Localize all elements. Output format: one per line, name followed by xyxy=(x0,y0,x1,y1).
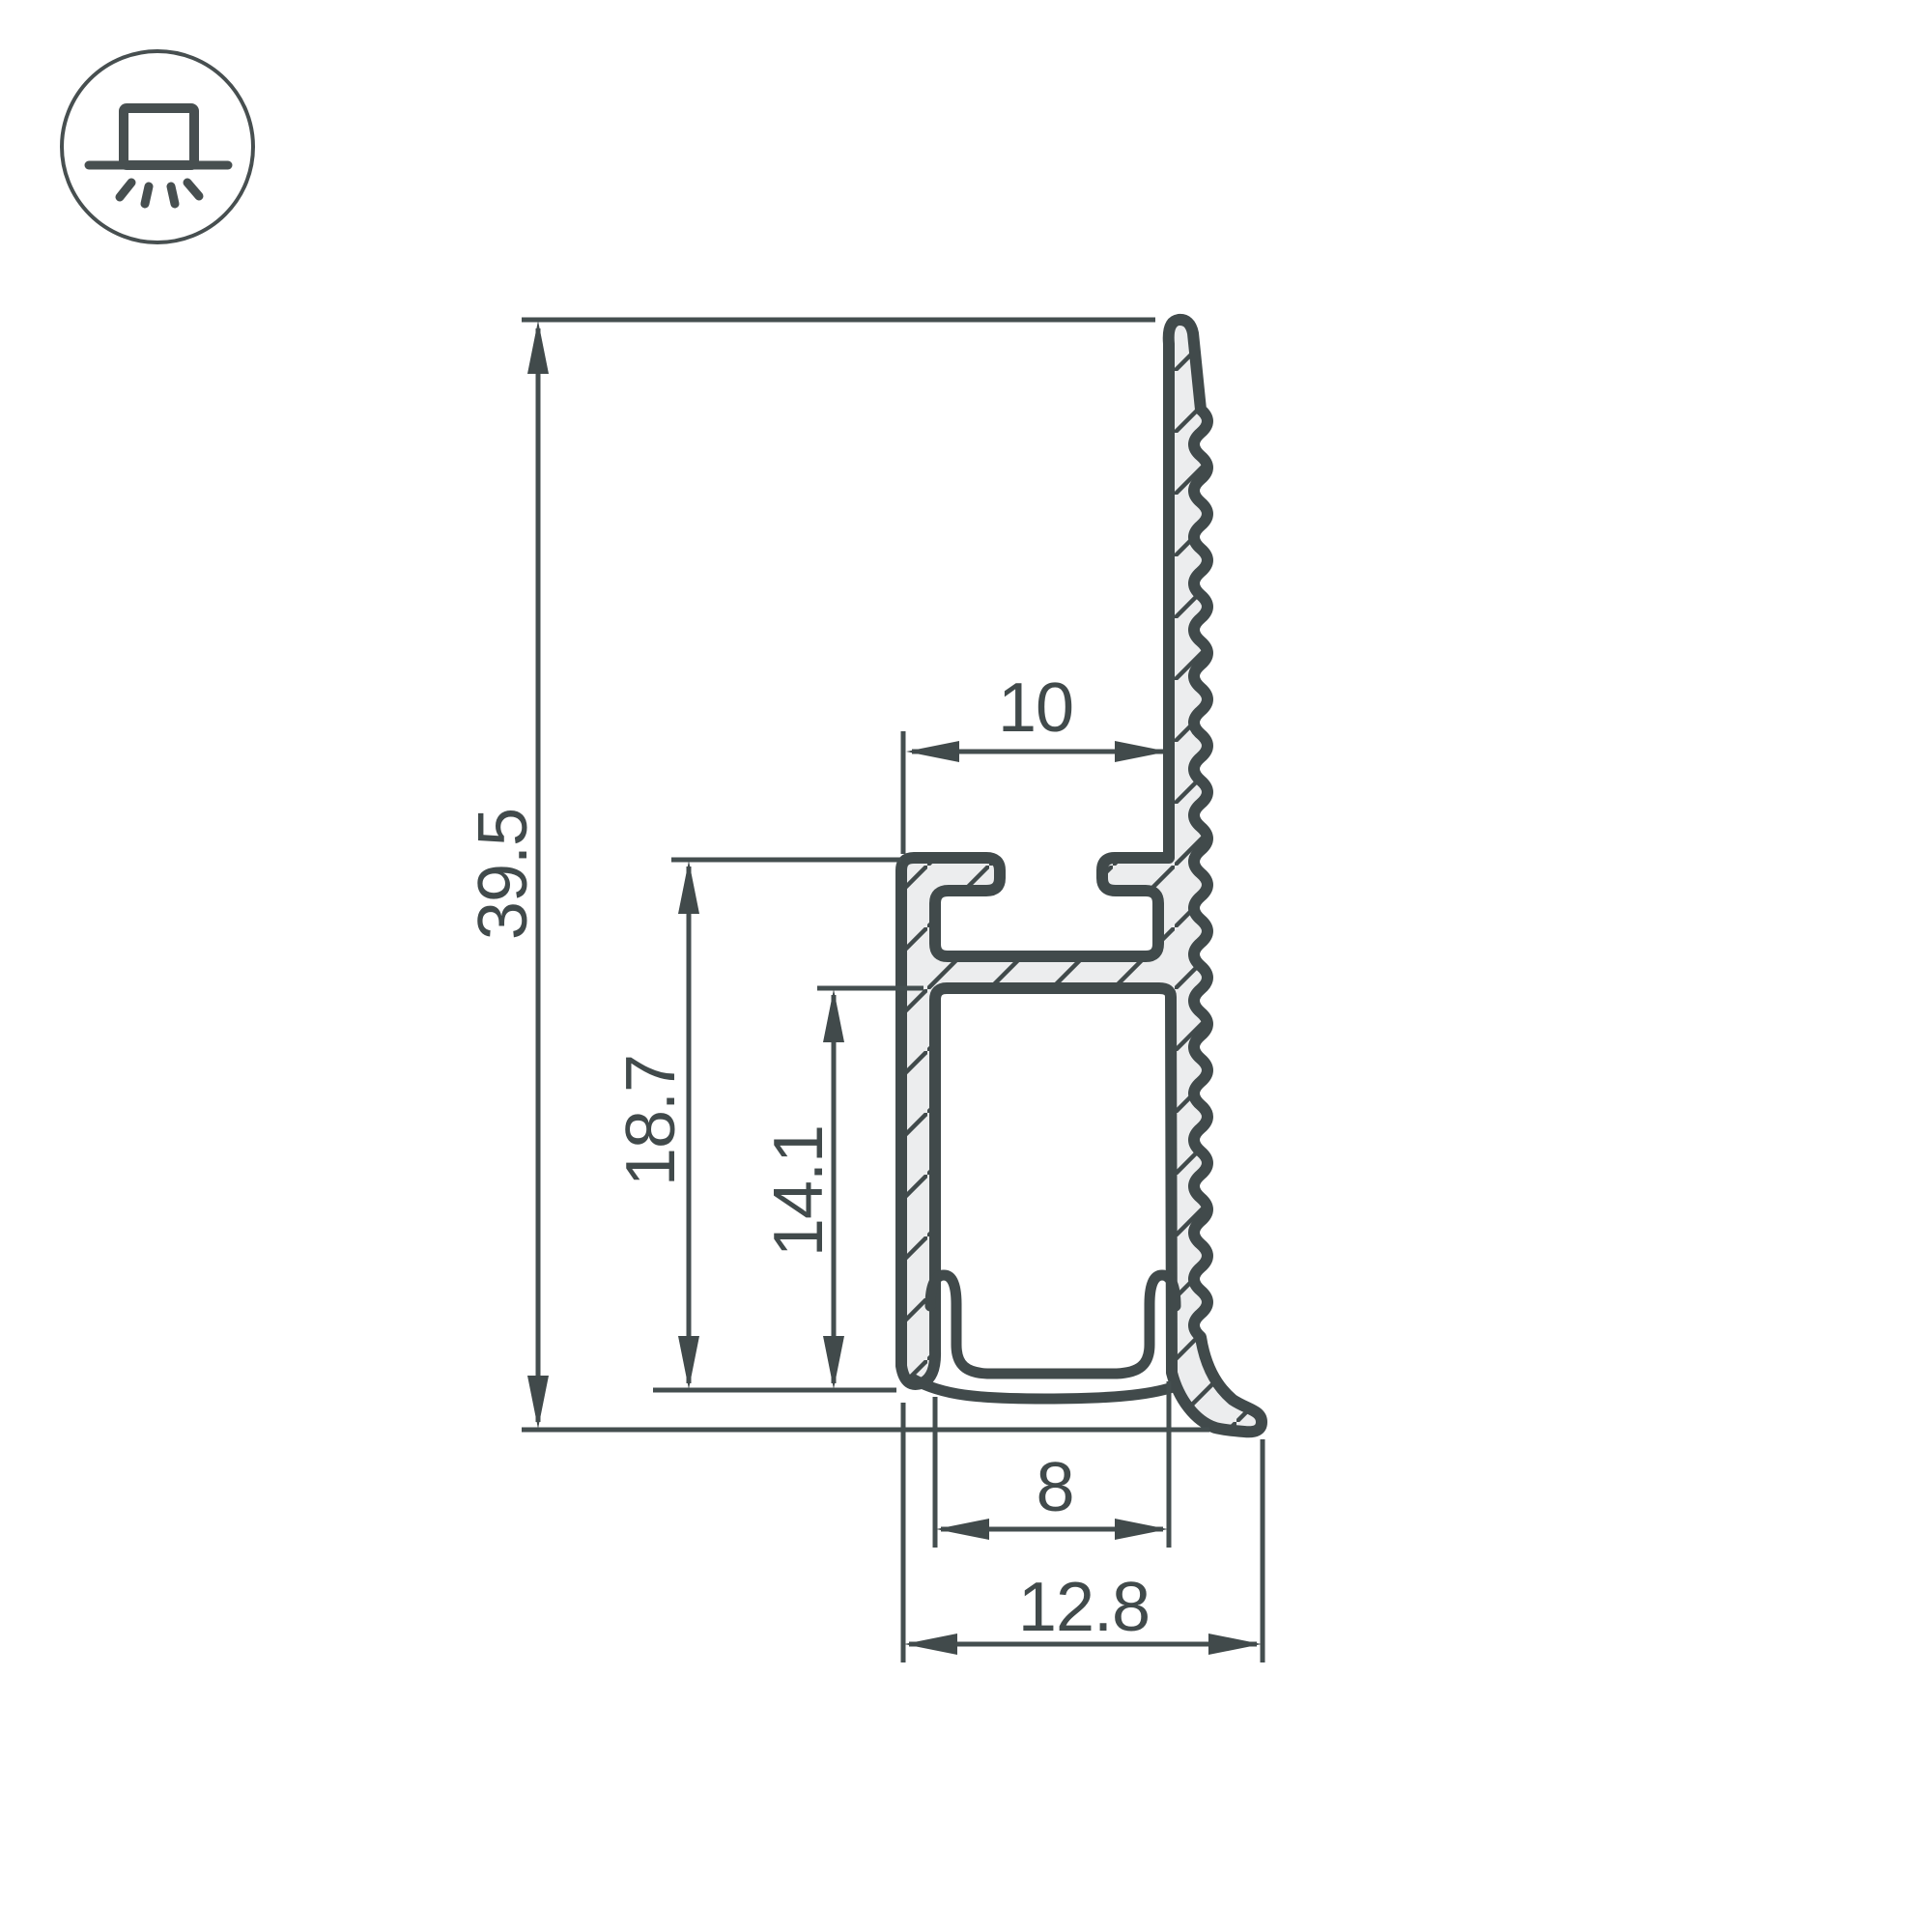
profile-body xyxy=(901,320,1262,1432)
icon-light-rays xyxy=(120,183,199,204)
arrow-right-icon xyxy=(1115,1519,1168,1540)
channel-bottom-skin xyxy=(914,1379,1173,1399)
arrow-right-icon xyxy=(1208,1634,1262,1655)
dimension-mount-height: 18.7 xyxy=(612,860,901,1390)
technical-drawing-page: 39.5 18.7 14.1 10 xyxy=(0,0,1932,1932)
arrow-left-icon xyxy=(906,741,959,762)
dimension-top-groove-width: 10 xyxy=(903,669,1168,854)
icon-fixture-box xyxy=(124,108,194,165)
diffuser-insert xyxy=(930,1275,1176,1374)
arrow-up-icon xyxy=(823,989,844,1042)
arrow-down-icon xyxy=(527,1376,549,1429)
icon-circle xyxy=(62,51,253,242)
arrow-right-icon xyxy=(1115,741,1168,762)
dimension-label-top-groove-width: 10 xyxy=(998,669,1073,747)
arrow-down-icon xyxy=(678,1336,699,1389)
dimension-label-overall-height: 39.5 xyxy=(465,809,542,940)
arrow-left-icon xyxy=(904,1634,957,1655)
profile-cross-section-drawing: 39.5 18.7 14.1 10 xyxy=(0,0,1932,1932)
profile-geometry xyxy=(901,320,1262,1432)
dimension-label-mount-height: 18.7 xyxy=(612,1055,690,1186)
arrow-up-icon xyxy=(678,861,699,914)
dimension-label-channel-inner-height: 14.1 xyxy=(760,1125,838,1257)
dimension-label-overall-width: 12.8 xyxy=(1018,1569,1150,1646)
dimension-channel-inner-width: 8 xyxy=(935,1381,1169,1548)
dimension-label-channel-inner-width: 8 xyxy=(1036,1449,1073,1526)
arrow-up-icon xyxy=(527,321,549,374)
arrow-down-icon xyxy=(823,1336,844,1389)
surface-mount-light-icon xyxy=(62,51,253,242)
arrow-left-icon xyxy=(936,1519,989,1540)
